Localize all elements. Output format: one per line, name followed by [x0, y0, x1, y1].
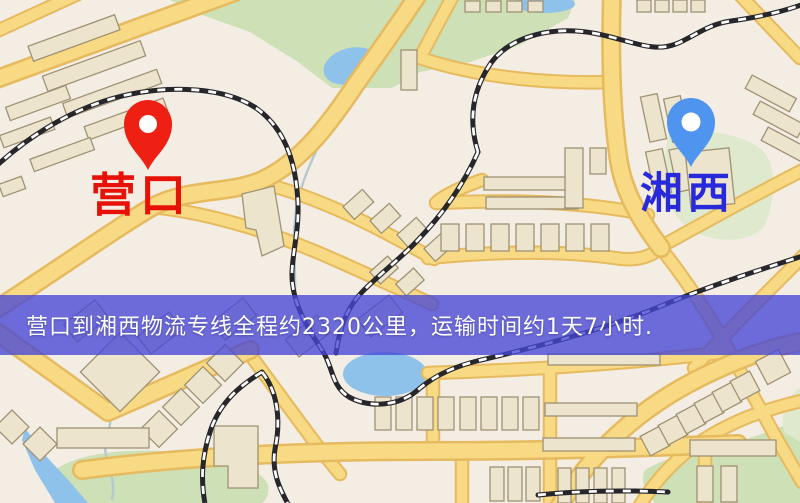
route-info-text: 营口到湘西物流专线全程约2320公里，运输时间约1天7小时. — [26, 309, 653, 341]
destination-pin-hole — [682, 113, 701, 132]
map-image — [0, 0, 800, 503]
destination-label: 湘西 — [640, 173, 734, 216]
map-screenshot: 营口 湘西 营口到湘西物流专线全程约2320公里，运输时间约1天7小时. — [0, 0, 800, 503]
route-info-banner: 营口到湘西物流专线全程约2320公里，运输时间约1天7小时. — [0, 295, 800, 355]
origin-pin-hole — [139, 115, 157, 133]
origin-label: 营口 — [90, 172, 190, 218]
